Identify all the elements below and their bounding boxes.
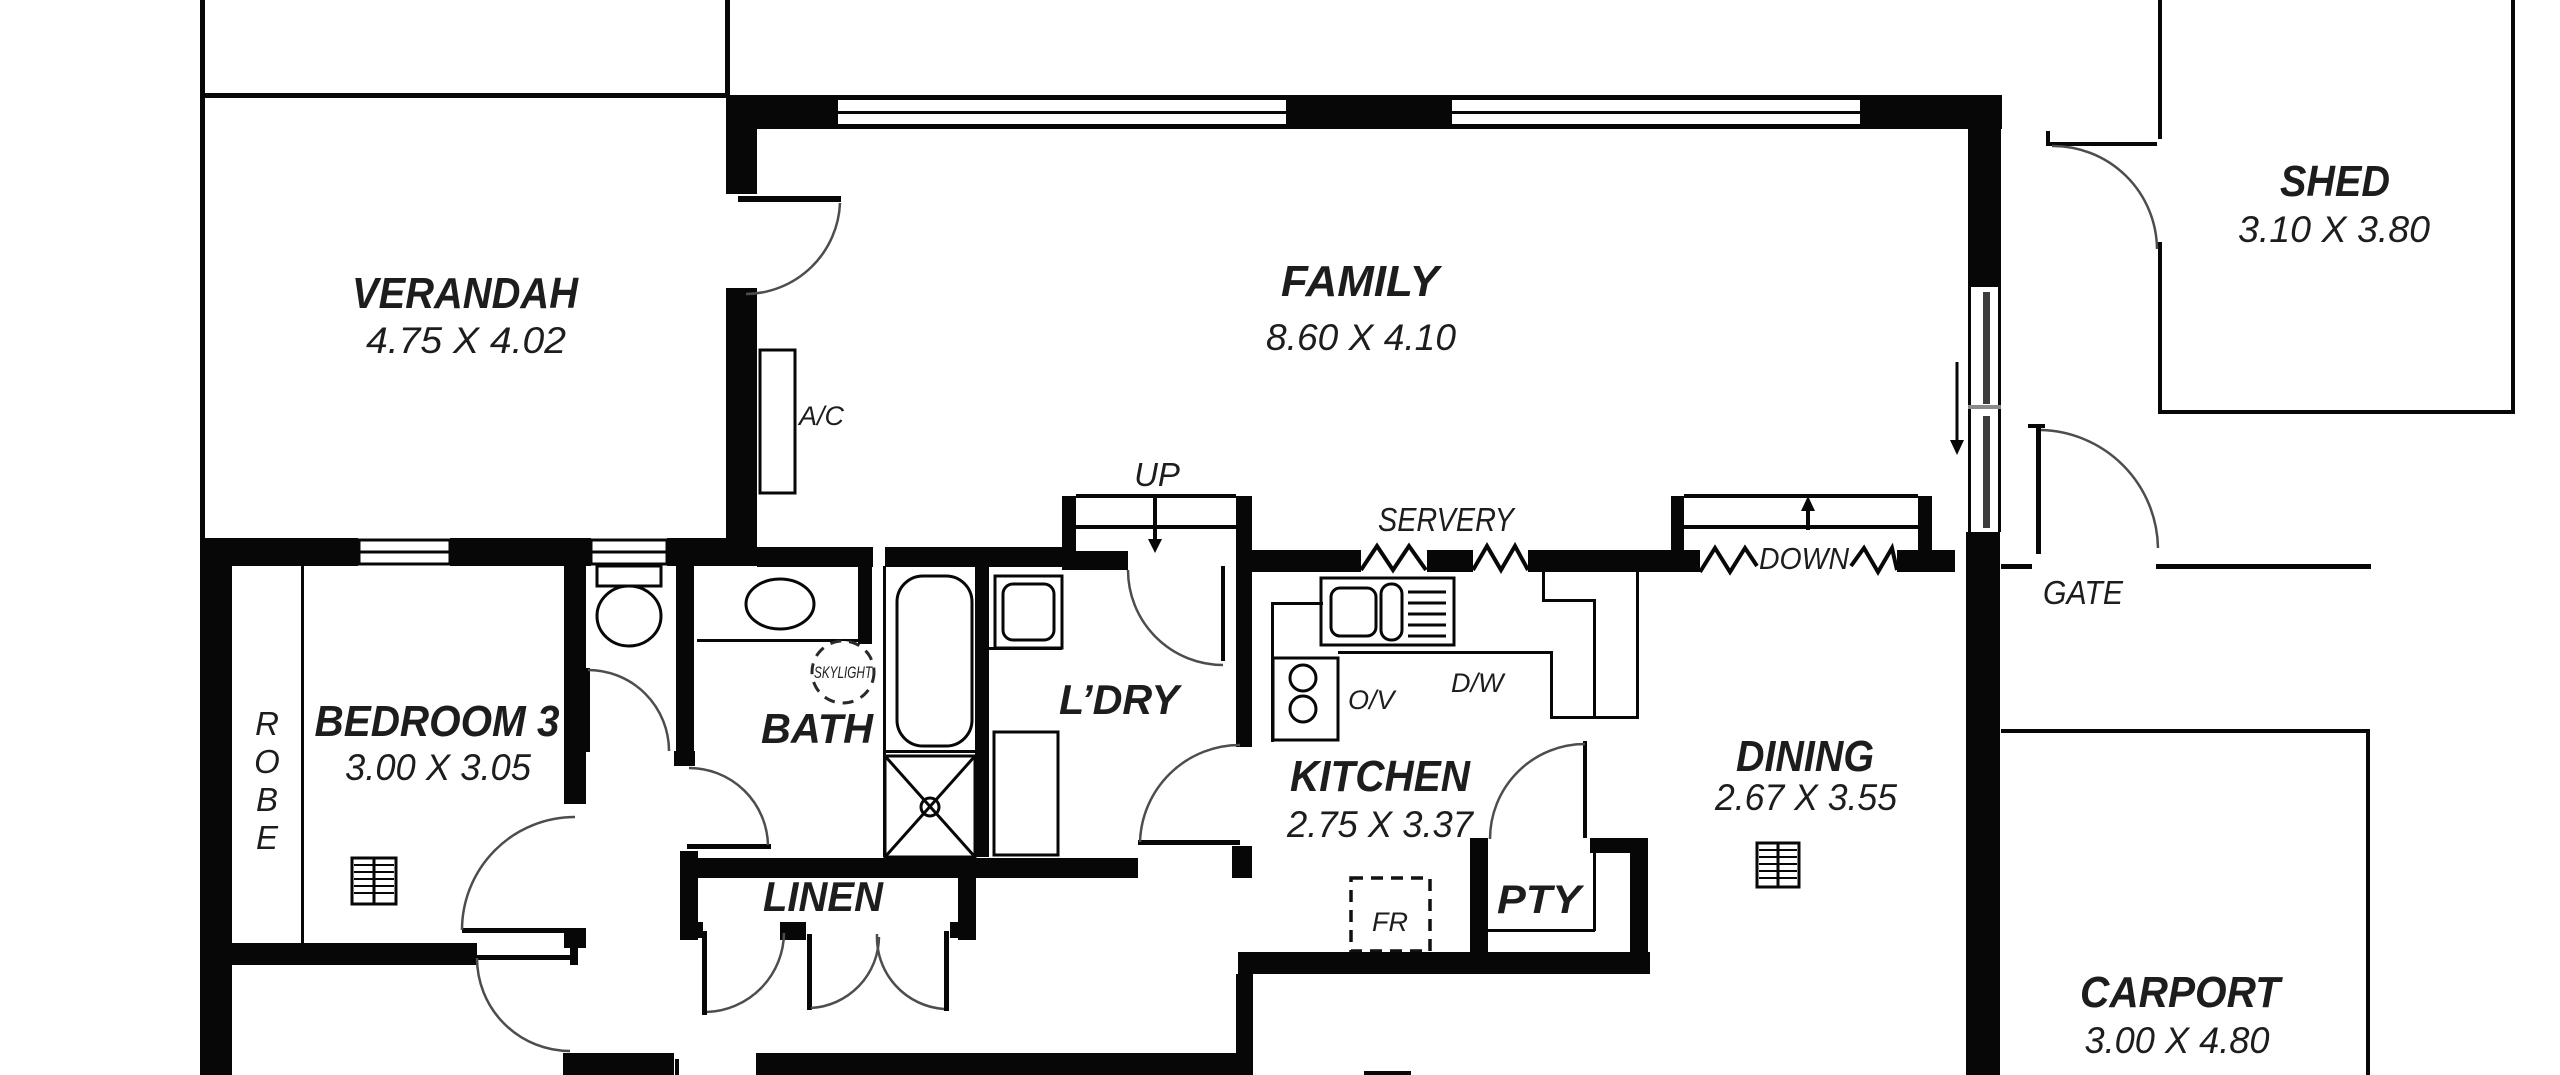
svg-text:D/W: D/W xyxy=(1451,668,1506,698)
svg-text:SERVERY: SERVERY xyxy=(1378,501,1516,538)
svg-text:R: R xyxy=(255,705,279,742)
svg-text:DINING: DINING xyxy=(1736,732,1874,781)
svg-text:VERANDAH: VERANDAH xyxy=(352,269,579,318)
svg-text:BEDROOM 3: BEDROOM 3 xyxy=(315,697,560,746)
svg-text:L’DRY: L’DRY xyxy=(1059,676,1183,723)
svg-text:8.60 X 4.10: 8.60 X 4.10 xyxy=(1266,317,1456,358)
svg-text:SKYLIGHT: SKYLIGHT xyxy=(814,663,873,682)
svg-text:SHED: SHED xyxy=(2280,157,2390,206)
svg-text:3.00 X 4.80: 3.00 X 4.80 xyxy=(2085,1020,2270,1061)
svg-text:FR: FR xyxy=(1372,907,1408,937)
svg-text:B: B xyxy=(256,781,278,818)
svg-text:2.67 X 3.55: 2.67 X 3.55 xyxy=(1714,777,1897,818)
svg-text:BATH: BATH xyxy=(761,705,875,752)
svg-text:A/C: A/C xyxy=(797,401,845,431)
svg-text:3.00 X 3.05: 3.00 X 3.05 xyxy=(345,747,531,788)
svg-text:O/V: O/V xyxy=(1348,685,1398,715)
svg-text:2.75 X 3.37: 2.75 X 3.37 xyxy=(1286,804,1474,845)
svg-text:KITCHEN: KITCHEN xyxy=(1290,752,1471,801)
svg-text:DOWN: DOWN xyxy=(1759,541,1850,576)
svg-text:FAMILY: FAMILY xyxy=(1281,257,1443,306)
svg-text:3.10 X 3.80: 3.10 X 3.80 xyxy=(2238,209,2430,250)
svg-text:CARPORT: CARPORT xyxy=(2080,968,2283,1017)
svg-text:PTY: PTY xyxy=(1497,878,1585,922)
svg-text:O: O xyxy=(254,743,280,780)
svg-text:E: E xyxy=(256,819,279,856)
svg-text:4.75 X 4.02: 4.75 X 4.02 xyxy=(366,320,566,361)
svg-text:GATE: GATE xyxy=(2043,574,2124,611)
svg-text:LINEN: LINEN xyxy=(763,873,885,920)
svg-text:UP: UP xyxy=(1134,456,1180,493)
